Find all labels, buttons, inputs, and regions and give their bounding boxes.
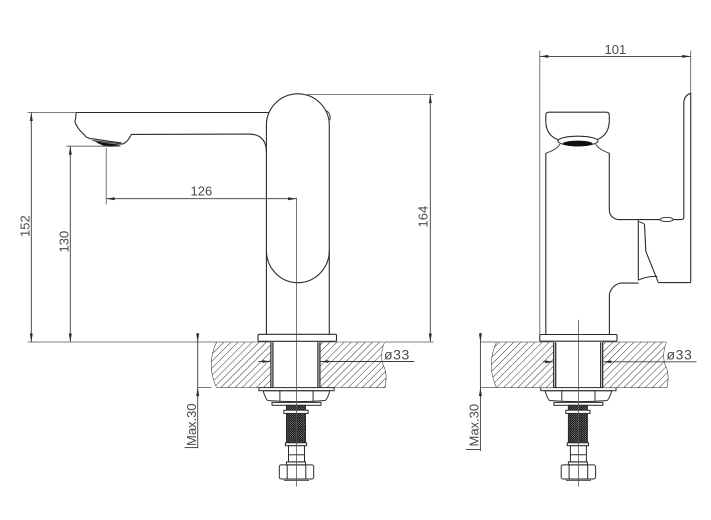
svg-text:126: 126 <box>191 183 213 198</box>
svg-text:Max.30: Max.30 <box>184 403 199 446</box>
svg-text:ø33: ø33 <box>667 346 693 362</box>
svg-text:101: 101 <box>605 42 627 57</box>
svg-text:Max.30: Max.30 <box>467 404 482 447</box>
svg-text:164: 164 <box>416 206 431 228</box>
svg-text:152: 152 <box>18 215 33 237</box>
svg-text:ø33: ø33 <box>384 347 410 363</box>
svg-text:130: 130 <box>57 231 72 253</box>
